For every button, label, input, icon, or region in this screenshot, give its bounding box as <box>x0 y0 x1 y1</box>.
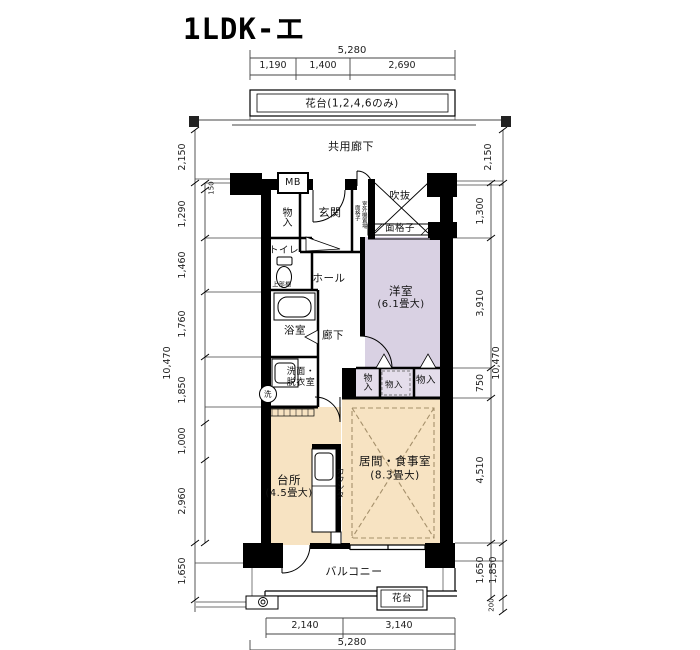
counter-label: カウンター <box>336 467 344 507</box>
meter-box-label: MB <box>285 177 301 189</box>
dim-right-seg-1300: 1,300 <box>475 197 487 224</box>
hall-label: ホール <box>313 272 346 285</box>
dim-right-bottom-edge: 200 <box>488 598 497 611</box>
kitchen-size: (4.5畳大) <box>265 488 312 501</box>
grille-label: 面格子 <box>385 223 415 235</box>
toilet-tank <box>277 257 292 265</box>
bath-label: 浴室 <box>284 324 306 337</box>
dim-top-total: 5,280 <box>338 45 367 58</box>
building-edge-right <box>501 116 511 127</box>
dim-left-seg-1850: 1,850 <box>177 376 189 403</box>
dim-left-seg-1290: 1,290 <box>177 200 189 227</box>
entrance-step-mark <box>306 237 340 251</box>
dim-left-bottom: 1,650 <box>177 557 189 584</box>
common-corridor-label: 共用廊下 <box>328 140 374 154</box>
wall-corner-tr <box>427 173 457 197</box>
upper-shelf-label: 上部棚 <box>272 281 292 289</box>
entrance-closet-label: 物入 <box>280 207 290 227</box>
wall-right <box>440 197 453 543</box>
drain-outer <box>259 598 268 607</box>
wall-closet-cap <box>342 368 356 398</box>
living-dining-size: (8.3畳大) <box>370 469 419 482</box>
dim-left-seg-1000: 1,000 <box>177 427 189 454</box>
western-room-label: 洋室 <box>389 284 413 298</box>
wall-top-3 <box>345 179 357 190</box>
dim-right-seg-3910: 3,910 <box>475 289 487 316</box>
wall-void-left <box>368 179 375 239</box>
corridor-edge-lines <box>195 120 505 125</box>
dim-left-top: 2,150 <box>177 143 189 170</box>
western-room-size: (6.1畳大) <box>377 299 424 312</box>
void-label: 吹抜 <box>390 191 411 204</box>
floor-plan-page: 1LDK-エ 共用廊下 MB 物入 玄関 吹抜 室外機置場 面格子 面格子 トイ… <box>0 0 700 650</box>
dim-right-seg-750: 750 <box>475 374 487 392</box>
flower-stand-bottom-label: 花台 <box>392 593 412 605</box>
dim-left-seg-2960: 2,960 <box>177 487 189 514</box>
wall-corner-tl <box>230 173 262 195</box>
building-edge-left <box>189 116 199 127</box>
dim-bottom-total: 5,280 <box>338 637 367 650</box>
dim-top-seg-3: 2,690 <box>388 60 415 72</box>
left-dimension-lines <box>195 130 205 612</box>
dim-left-overall: 10,470 <box>162 346 174 379</box>
dim-right-overall: 10,470 <box>491 346 503 379</box>
washer-label: 洗 <box>264 389 272 398</box>
wall-bottom-mid <box>310 543 350 549</box>
wall-corner-bl <box>243 543 283 568</box>
dim-left-seg-1460: 1,460 <box>177 251 189 278</box>
kitchen-label: 台所 <box>277 473 301 487</box>
balcony-door-arc <box>282 545 310 573</box>
dim-top-seg-1: 1,190 <box>259 60 286 72</box>
dim-right-bottom-outer: 1,850 <box>488 556 500 583</box>
dim-right-bottom-inner: 1,650 <box>475 556 487 583</box>
dim-left-seg-1760: 1,760 <box>177 310 189 337</box>
wall-window-end <box>430 233 440 240</box>
dim-bottom-seg-2: 3,140 <box>385 620 412 632</box>
bath-door-mark <box>305 330 318 344</box>
kitchen-sink <box>315 453 333 480</box>
outdoor-unit-label: 室外機置場 <box>360 201 366 229</box>
dim-bottom-seg-1: 2,140 <box>291 620 318 632</box>
balcony-label: バルコニー <box>325 565 382 579</box>
corridor-label: 廊下 <box>322 329 344 342</box>
closet-c-label: 物入 <box>416 375 436 387</box>
dim-top-seg-2: 1,400 <box>309 60 336 72</box>
grille-side-label: 面格子 <box>353 205 359 222</box>
living-dining-label: 居間・食事室 <box>359 454 431 468</box>
entrance-label: 玄関 <box>319 206 342 220</box>
washroom-label: 洗面・ 脱衣室 <box>287 367 316 390</box>
closet-a-label: 物入 <box>362 373 371 391</box>
wall-western-west <box>360 237 365 336</box>
flower-stand-top-label: 花台(1,2,4,6のみ) <box>305 97 398 110</box>
balcony-window <box>350 545 425 550</box>
bathtub <box>278 297 311 317</box>
wall-corner-br <box>425 543 455 568</box>
toilet-label: トイレ <box>269 245 299 257</box>
dim-right-top: 2,150 <box>483 143 495 170</box>
dim-right-seg-4510: 4,510 <box>475 456 487 483</box>
plan-title: 1LDK-エ <box>183 6 305 48</box>
counter-end-box <box>331 532 341 544</box>
dim-left-seg-150: 150 <box>208 181 217 194</box>
closet-b-label: 物入 <box>385 381 403 392</box>
wall-top-1 <box>262 179 278 190</box>
